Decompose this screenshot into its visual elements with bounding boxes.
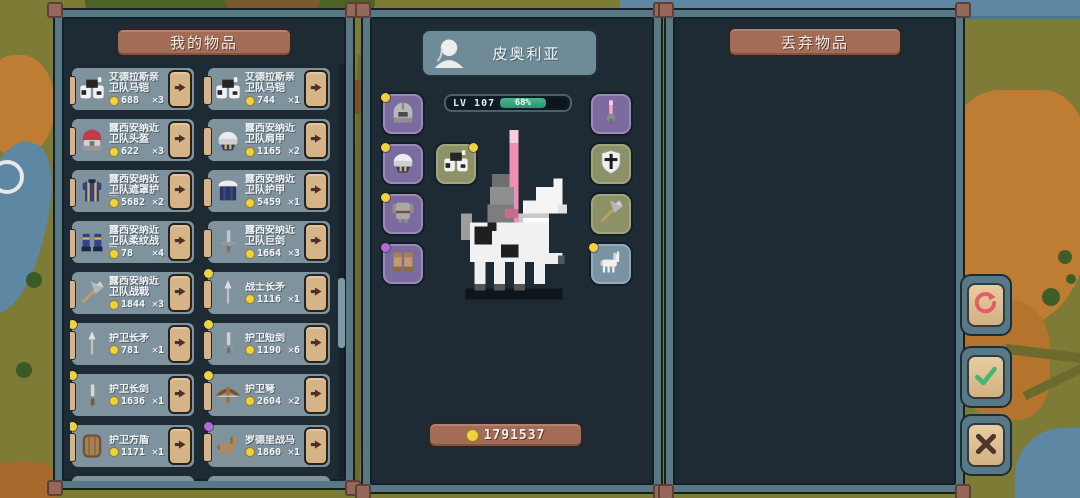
item-card[interactable]: 罗德里战马1860✕1 [206, 423, 332, 469]
item-values: 1636✕1 [109, 396, 168, 407]
yellow-quality-dot [204, 269, 213, 278]
item-values: 1165✕2 [245, 146, 304, 157]
navy-armor-icon [214, 175, 242, 207]
boots-icon [389, 248, 417, 280]
transfer-item-button[interactable] [168, 121, 192, 159]
crossbow-icon [214, 379, 242, 411]
item-info: 护卫弩2604✕2 [245, 384, 304, 407]
transfer-item-button[interactable] [304, 325, 328, 363]
item-price: 1860 [257, 447, 281, 458]
item-values: 744✕1 [245, 95, 304, 106]
map-terrain-patch [225, 0, 320, 9]
item-name: 露西安纳近卫队战戟 [109, 276, 168, 298]
panel-corner [658, 484, 674, 498]
refresh-button[interactable] [960, 274, 1012, 336]
item-quantity: ✕1 [288, 95, 300, 106]
cross-shield-icon [597, 148, 625, 180]
cancel-button-face [967, 423, 1005, 467]
item-card[interactable]: 露西安纳近卫队战戟1844✕3 [70, 270, 196, 316]
scrollbar-track[interactable] [338, 64, 345, 478]
item-values: 5459✕1 [245, 197, 304, 208]
item-name: 露西安纳近卫队头盔 [109, 123, 168, 145]
gold-display: 1791537 [428, 422, 583, 448]
item-name: 战士长矛 [245, 282, 304, 293]
equipment-slot-boots[interactable] [383, 244, 423, 284]
equipment-slot-cross-shield[interactable] [591, 144, 631, 184]
confirm-button-face [967, 355, 1005, 399]
yellow-quality-dot [381, 93, 390, 102]
halberd-icon [78, 277, 106, 309]
inventory-column-left: 艾德拉斯亲卫队马铠688✕3露西安纳近卫队头盔622✕3露西安纳近卫队遮罩护甲5… [70, 66, 196, 481]
item-tab [203, 76, 212, 105]
item-info: 罗德里战马1860✕1 [245, 435, 304, 458]
item-name: 罗德里战马 [245, 435, 304, 446]
item-quantity: ✕1 [288, 294, 300, 305]
item-name: 艾德拉斯亲卫队马铠 [109, 72, 168, 94]
item-values: 78✕4 [109, 248, 168, 259]
item-values: 1171✕1 [109, 447, 168, 458]
item-card[interactable]: 艾德拉斯亲卫队马铠688✕3 [70, 66, 196, 112]
level-label: LV 107 [453, 98, 495, 109]
pauldron-icon [214, 124, 242, 156]
arrow-right-icon [309, 80, 324, 98]
coin-icon [109, 396, 119, 406]
spear-icon [214, 277, 242, 309]
map-terrain-patch [0, 55, 54, 155]
item-tab [203, 433, 212, 462]
item-card-partial [206, 474, 332, 481]
yellow-quality-dot [204, 320, 213, 329]
inventory-grid: 艾德拉斯亲卫队马铠688✕3露西安纳近卫队头盔622✕3露西安纳近卫队遮罩护甲5… [70, 66, 332, 481]
item-price: 1190 [257, 345, 281, 356]
item-price: 5459 [257, 197, 281, 208]
helmet-icon [389, 98, 417, 130]
arrow-right-icon [173, 131, 188, 149]
item-tab [70, 382, 76, 411]
item-values: 1116✕1 [245, 294, 304, 305]
item-name: 护卫短剑 [245, 333, 304, 344]
arrow-right-icon [309, 437, 324, 455]
halberd-icon [597, 198, 625, 230]
item-quantity: ✕3 [288, 248, 300, 259]
item-price: 5682 [121, 197, 145, 208]
item-values: 688✕3 [109, 95, 168, 106]
item-tab [70, 178, 76, 207]
item-card[interactable]: 护卫长剑1636✕1 [70, 372, 196, 418]
inventory-column-right: 艾德拉斯亲卫队马铠744✕1露西安纳近卫队肩甲1165✕2露西安纳近卫队护甲54… [206, 66, 332, 481]
spear-icon [78, 328, 106, 360]
lance-icon [597, 98, 625, 130]
coin-icon [109, 96, 119, 106]
item-card[interactable]: 露西安纳近卫队肩甲1165✕2 [206, 117, 332, 163]
level-bar: LV 107 68% [444, 94, 572, 112]
equipment-right-column [591, 94, 631, 284]
item-price: 78 [121, 248, 133, 259]
item-quantity: ✕1 [288, 197, 300, 208]
inventory-panel: 我的物品 艾德拉斯亲卫队马铠688✕3露西安纳近卫队头盔622✕3露西安纳近卫队… [55, 10, 353, 488]
coin-icon [245, 447, 255, 457]
character-panel: 皮奥利亚 LV 107 68% [363, 10, 661, 492]
map-tree [26, 272, 42, 288]
portrait-icon [431, 32, 467, 74]
yellow-quality-dot [381, 193, 390, 202]
item-values: 2604✕2 [245, 396, 304, 407]
arrow-right-icon [309, 284, 324, 302]
item-info: 护卫方盾1171✕1 [109, 435, 168, 458]
equipment-barding-slot-wrap [436, 144, 476, 184]
item-quantity: ✕2 [288, 396, 300, 407]
character-name: 皮奥利亚 [467, 43, 586, 64]
item-name: 露西安纳近卫队肩甲 [245, 123, 304, 145]
item-quantity: ✕2 [152, 197, 164, 208]
arrow-right-icon [173, 284, 188, 302]
short-sword-icon [214, 328, 242, 360]
blue-boots-icon [78, 226, 106, 258]
coin-icon [245, 396, 255, 406]
item-tab [203, 331, 212, 360]
item-quantity: ✕2 [288, 146, 300, 157]
item-info: 艾德拉斯亲卫队马铠744✕1 [245, 72, 304, 106]
equipment-slot-lance[interactable] [591, 94, 631, 134]
item-card[interactable]: 护卫短剑1190✕6 [206, 321, 332, 367]
item-card[interactable]: 艾德拉斯亲卫队马铠744✕1 [206, 66, 332, 112]
item-name: 露西安纳近卫队护甲 [245, 174, 304, 196]
equipment-slot-halberd[interactable] [591, 194, 631, 234]
item-quantity: ✕1 [152, 396, 164, 407]
arrow-right-icon [309, 386, 324, 404]
item-price: 688 [121, 95, 139, 106]
item-price: 1664 [257, 248, 281, 259]
item-info: 艾德拉斯亲卫队马铠688✕3 [109, 72, 168, 106]
equipment-slot-horse-armor[interactable] [436, 144, 476, 184]
item-tab [70, 280, 76, 309]
item-quantity: ✕3 [152, 95, 164, 106]
map-river [1015, 428, 1080, 498]
yellow-quality-dot [381, 143, 390, 152]
item-price: 1844 [121, 299, 145, 310]
transfer-item-button[interactable] [304, 427, 328, 465]
coin-icon [245, 249, 255, 259]
arrow-right-icon [173, 335, 188, 353]
transfer-item-button[interactable] [304, 223, 328, 261]
item-info: 露西安纳近卫队柔纹战靴78✕4 [109, 225, 168, 259]
chest-armor-icon [389, 198, 417, 230]
xp-progress-track: 68% [500, 98, 567, 108]
item-info: 护卫长剑1636✕1 [109, 384, 168, 407]
pauldron-icon [389, 148, 417, 180]
inventory-title: 我的物品 [116, 28, 292, 57]
gold-amount: 1791537 [484, 428, 546, 443]
item-tab [203, 382, 212, 411]
transfer-item-button[interactable] [304, 172, 328, 210]
item-price: 1636 [121, 396, 145, 407]
arrow-right-icon [173, 437, 188, 455]
brown-horse-icon [214, 430, 242, 462]
transfer-item-button[interactable] [304, 274, 328, 312]
item-card[interactable]: 露西安纳近卫队头盔622✕3 [70, 117, 196, 163]
item-quantity: ✕3 [152, 146, 164, 157]
coin-icon [245, 96, 255, 106]
item-quantity: ✕1 [152, 345, 164, 356]
transfer-item-button[interactable] [168, 325, 192, 363]
transfer-item-button[interactable] [168, 70, 192, 108]
transfer-item-button[interactable] [168, 274, 192, 312]
item-card[interactable]: 露西安纳近卫队护甲5459✕1 [206, 168, 332, 214]
transfer-item-button[interactable] [304, 70, 328, 108]
coin-icon [109, 447, 119, 457]
coin-icon [109, 198, 119, 208]
panel-corner [955, 2, 971, 18]
panel-corner [955, 484, 971, 498]
coin-icon [109, 300, 119, 310]
equipment-slot-pauldron[interactable] [383, 144, 423, 184]
item-quantity: ✕6 [288, 345, 300, 356]
transfer-item-button[interactable] [168, 223, 192, 261]
coin-icon [245, 198, 255, 208]
transfer-item-button[interactable] [304, 121, 328, 159]
sword-icon [78, 379, 106, 411]
item-info: 露西安纳近卫队肩甲1165✕2 [245, 123, 304, 157]
item-card[interactable]: 护卫长矛781✕1 [70, 321, 196, 367]
item-info: 战士长矛1116✕1 [245, 282, 304, 305]
transfer-item-button[interactable] [168, 427, 192, 465]
arrow-right-icon [173, 80, 188, 98]
confirm-button[interactable] [960, 346, 1012, 408]
item-price: 781 [121, 345, 139, 356]
arrow-right-icon [173, 182, 188, 200]
x-icon [973, 431, 999, 460]
item-price: 622 [121, 146, 139, 157]
yellow-quality-dot [469, 143, 478, 152]
yellow-quality-dot [70, 371, 77, 380]
coin-icon [245, 294, 255, 304]
refresh-icon [973, 291, 999, 320]
item-card-partial [70, 474, 196, 481]
discard-title: 丢弃物品 [728, 27, 902, 57]
item-tab [203, 178, 212, 207]
item-tab [70, 433, 76, 462]
equipment-slot-horse[interactable] [591, 244, 631, 284]
item-tab [70, 127, 76, 156]
coin-icon [245, 345, 255, 355]
item-values: 1190✕6 [245, 345, 304, 356]
transfer-item-button[interactable] [168, 376, 192, 414]
item-tab [203, 229, 212, 258]
item-price: 1165 [257, 146, 281, 157]
transfer-item-button[interactable] [168, 172, 192, 210]
coin-icon [109, 249, 119, 259]
item-values: 781✕1 [109, 345, 168, 356]
round-shield-icon [78, 430, 106, 462]
item-card[interactable]: 露西安纳近卫队巨剑1664✕3 [206, 219, 332, 265]
item-price: 1116 [257, 294, 281, 305]
greatsword-icon [214, 226, 242, 258]
item-name: 护卫长剑 [109, 384, 168, 395]
item-values: 5682✕2 [109, 197, 168, 208]
horse-armor-icon [442, 148, 470, 180]
item-card[interactable]: 战士长矛1116✕1 [206, 270, 332, 316]
item-quantity: ✕1 [152, 447, 164, 458]
map-tree [1042, 288, 1060, 306]
item-price: 744 [257, 95, 275, 106]
equipment-slot-chest-armor[interactable] [383, 194, 423, 234]
item-info: 露西安纳近卫队头盔622✕3 [109, 123, 168, 157]
item-info: 露西安纳近卫队战戟1844✕3 [109, 276, 168, 310]
yellow-quality-dot [589, 243, 598, 252]
item-name: 露西安纳近卫队巨剑 [245, 225, 304, 247]
purple-quality-dot [204, 422, 213, 431]
item-name: 护卫长矛 [109, 333, 168, 344]
item-quantity: ✕3 [152, 299, 164, 310]
panel-corner [355, 2, 371, 18]
check-icon [973, 363, 999, 392]
item-quantity: ✕1 [288, 447, 300, 458]
xp-progress-fill: 68% [500, 98, 545, 108]
yellow-quality-dot [204, 371, 213, 380]
item-info: 护卫长矛781✕1 [109, 333, 168, 356]
equipment-left-column [383, 94, 423, 284]
item-name: 露西安纳近卫队遮罩护甲 [109, 174, 168, 196]
item-price: 1171 [121, 447, 145, 458]
coin-icon [466, 429, 479, 442]
item-info: 露西安纳近卫队护甲5459✕1 [245, 174, 304, 208]
cancel-button[interactable] [960, 414, 1012, 476]
panel-corner [355, 484, 371, 498]
item-quantity: ✕4 [152, 248, 164, 259]
panel-corner [47, 480, 63, 496]
red-helmet-icon [78, 124, 106, 156]
game-screen: 我的物品 艾德拉斯亲卫队马铠688✕3露西安纳近卫队头盔622✕3露西安纳近卫队… [0, 0, 1080, 498]
coin-icon [109, 345, 119, 355]
item-tab [203, 280, 212, 309]
item-values: 622✕3 [109, 146, 168, 157]
transfer-item-button[interactable] [304, 376, 328, 414]
arrow-right-icon [309, 182, 324, 200]
item-tab [203, 127, 212, 156]
item-tab [70, 229, 76, 258]
item-card[interactable]: 露西安纳近卫队柔纹战靴78✕4 [70, 219, 196, 265]
arrow-right-icon [173, 386, 188, 404]
discard-panel: 丢弃物品 [666, 10, 963, 492]
character-header: 皮奥利亚 [421, 29, 598, 77]
blue-surcoat-icon [78, 175, 106, 207]
item-price: 2604 [257, 396, 281, 407]
yellow-quality-dot [70, 422, 77, 431]
scrollbar-thumb[interactable] [338, 278, 345, 348]
item-card[interactable]: 护卫方盾1171✕1 [70, 423, 196, 469]
item-values: 1664✕3 [245, 248, 304, 259]
horse-armor-icon [78, 73, 106, 105]
purple-quality-dot [381, 243, 390, 252]
equipment-slot-helmet[interactable] [383, 94, 423, 134]
refresh-button-face [967, 283, 1005, 327]
item-info: 护卫短剑1190✕6 [245, 333, 304, 356]
arrow-right-icon [309, 131, 324, 149]
item-name: 艾德拉斯亲卫队马铠 [245, 72, 304, 94]
horse-armor-icon [214, 73, 242, 105]
coin-icon [245, 147, 255, 157]
panel-corner [47, 2, 63, 18]
item-name: 护卫方盾 [109, 435, 168, 446]
item-values: 1860✕1 [245, 447, 304, 458]
item-name: 护卫弩 [245, 384, 304, 395]
arrow-right-icon [309, 233, 324, 251]
item-values: 1844✕3 [109, 299, 168, 310]
horse-icon [597, 248, 625, 280]
arrow-right-icon [309, 335, 324, 353]
item-tab [70, 76, 76, 105]
item-name: 露西安纳近卫队柔纹战靴 [109, 225, 168, 247]
yellow-quality-dot [70, 320, 77, 329]
item-card[interactable]: 露西安纳近卫队遮罩护甲5682✕2 [70, 168, 196, 214]
panel-corner [658, 2, 674, 18]
coin-icon [109, 147, 119, 157]
arrow-right-icon [173, 233, 188, 251]
item-info: 露西安纳近卫队巨剑1664✕3 [245, 225, 304, 259]
item-tab [70, 331, 76, 360]
item-card[interactable]: 护卫弩2604✕2 [206, 372, 332, 418]
item-info: 露西安纳近卫队遮罩护甲5682✕2 [109, 174, 168, 208]
